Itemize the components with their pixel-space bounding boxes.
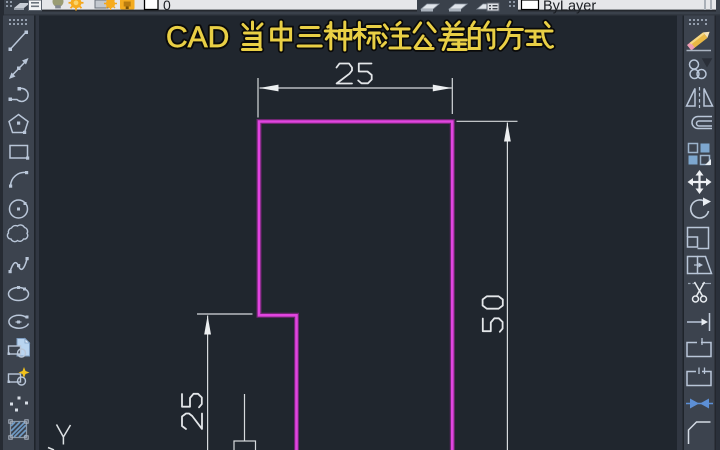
svg-text:ByLayer: ByLayer bbox=[543, 0, 596, 15]
svg-text:0: 0 bbox=[163, 0, 171, 13]
svg-text:CAD: CAD bbox=[166, 21, 229, 54]
